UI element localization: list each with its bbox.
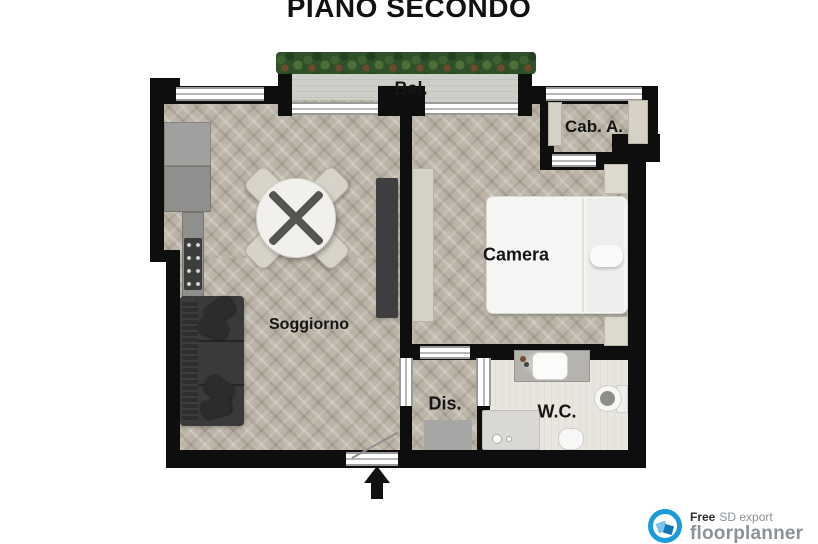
bed-fold-line	[582, 198, 584, 312]
entrance-arrow-stem	[371, 482, 383, 499]
label-wc: W.C.	[538, 402, 577, 423]
entrance-arrow-icon	[364, 466, 390, 483]
door-camera-dis	[420, 346, 470, 359]
cabina-wardrobe-left	[548, 102, 562, 146]
wall-bottom	[166, 450, 646, 468]
label-camera: Camera	[483, 245, 549, 266]
logo-cube-dark	[663, 524, 674, 535]
logo-free-label: Free	[690, 510, 715, 524]
logo-brand-name: floorplanner	[690, 524, 803, 543]
sofa-cushion-line-1	[198, 340, 244, 342]
kitchen-counter-upper	[164, 166, 211, 212]
bed-pillow	[590, 245, 623, 267]
wc-sink	[532, 352, 568, 380]
floorplanner-logo-icon	[648, 509, 682, 543]
vanity-accessory-2	[524, 362, 529, 367]
nightstand-bottom	[604, 316, 628, 346]
label-balcony: Bal.	[394, 79, 427, 100]
stove-icon	[184, 238, 202, 290]
sofa-backrest	[182, 300, 198, 422]
dis-mat	[424, 420, 472, 450]
label-disimpegno: Dis.	[428, 394, 461, 415]
wall-right-main	[628, 146, 646, 468]
wall-left-upper	[150, 78, 164, 262]
shower-tray	[482, 410, 540, 450]
toilet-seat	[600, 391, 615, 406]
cabina-wardrobe-right	[628, 100, 648, 144]
logo-tagline: FreeSD export	[690, 510, 773, 524]
entrance-door-opening	[346, 452, 398, 466]
label-cabina: Cab. A.	[565, 117, 623, 137]
slider-soggiorno-balcony	[292, 102, 378, 115]
nightstand-top	[604, 164, 628, 194]
kitchen-corner-cabinet	[164, 122, 211, 166]
floorplan-canvas: PIANO SECONDO	[0, 0, 818, 540]
window-soggiorno	[176, 87, 264, 101]
logo-export-label: SD export	[719, 510, 772, 524]
bidet-icon	[558, 428, 584, 450]
shower-knob-icon	[506, 436, 512, 442]
door-cabina-camera	[552, 154, 596, 167]
shower-drain-icon	[492, 434, 502, 444]
camera-wardrobe	[412, 168, 434, 322]
door-soggiorno-dis	[399, 358, 413, 406]
slider-camera-balcony	[425, 102, 518, 115]
balcony-planter	[276, 52, 536, 74]
page-title: PIANO SECONDO	[0, 0, 818, 24]
wall-left-lower	[166, 260, 180, 468]
label-soggiorno: Soggiorno	[269, 316, 349, 334]
door-dis-wc	[476, 358, 491, 406]
window-cabina	[546, 87, 642, 101]
tv-cabinet	[376, 178, 398, 318]
